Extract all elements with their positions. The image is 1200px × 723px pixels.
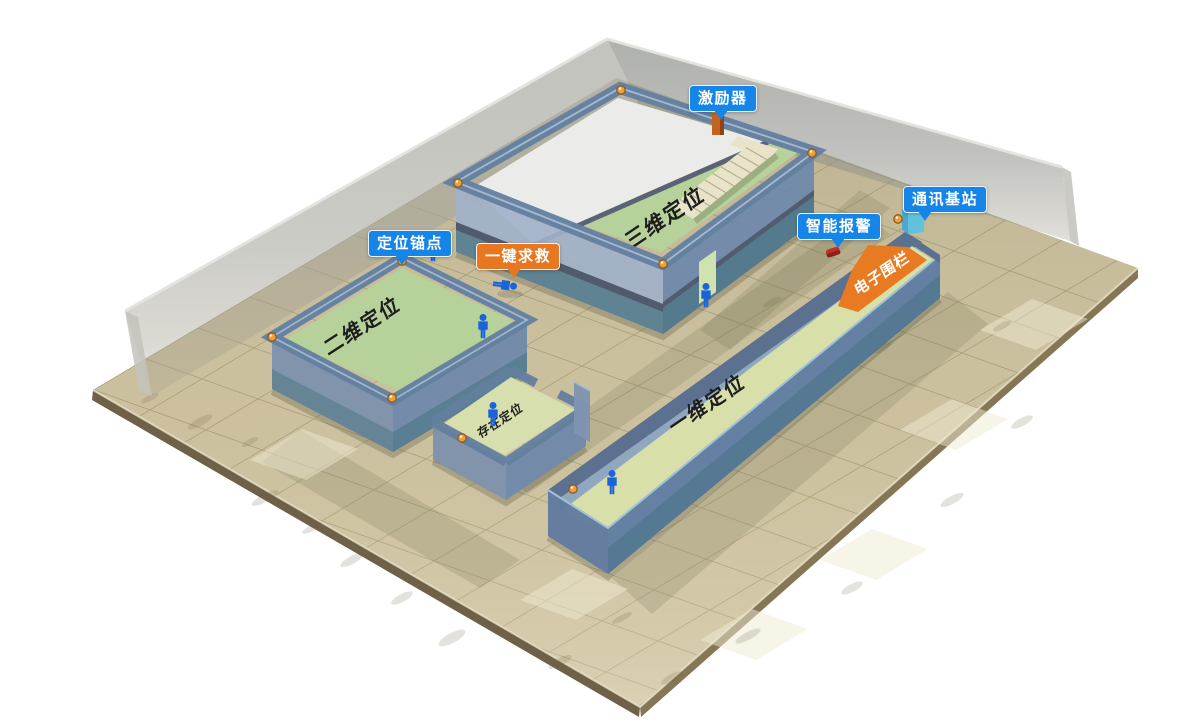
scene-stage: 三维定位 二维定位 存在定位 <box>0 0 1200 723</box>
badge-sos[interactable]: 一键求救 <box>476 243 560 270</box>
anchor-dot <box>454 179 462 187</box>
anchor-dot <box>894 215 902 223</box>
presence-door-pillar <box>574 382 590 442</box>
anchor-dot <box>388 394 396 402</box>
badge-sos-label: 一键求救 <box>485 248 551 265</box>
anchor-dot <box>617 86 625 94</box>
badge-comm-station[interactable]: 通讯基站 <box>903 186 987 213</box>
badge-comm-station-label: 通讯基站 <box>912 191 978 208</box>
badge-smart-alarm-label: 智能报警 <box>806 218 872 235</box>
scene-canvas: 三维定位 二维定位 存在定位 <box>0 0 1200 723</box>
badge-pointer-icon <box>831 238 845 248</box>
badge-pointer-icon <box>395 255 409 265</box>
badge-pointer-icon <box>714 110 728 120</box>
anchor-dot <box>659 260 667 268</box>
badge-anchor-point-label: 定位锚点 <box>377 235 443 252</box>
anchor-dot <box>268 333 276 341</box>
badge-exciter-label: 激励器 <box>698 90 748 107</box>
badge-pointer-icon <box>507 268 521 278</box>
badge-smart-alarm[interactable]: 智能报警 <box>797 213 881 240</box>
anchor-dot <box>458 434 466 442</box>
badge-anchor-point[interactable]: 定位锚点 <box>368 230 452 257</box>
badge-exciter[interactable]: 激励器 <box>689 85 757 112</box>
anchor-dot <box>808 149 816 157</box>
anchor-dot <box>569 485 577 493</box>
badge-pointer-icon <box>918 211 932 221</box>
